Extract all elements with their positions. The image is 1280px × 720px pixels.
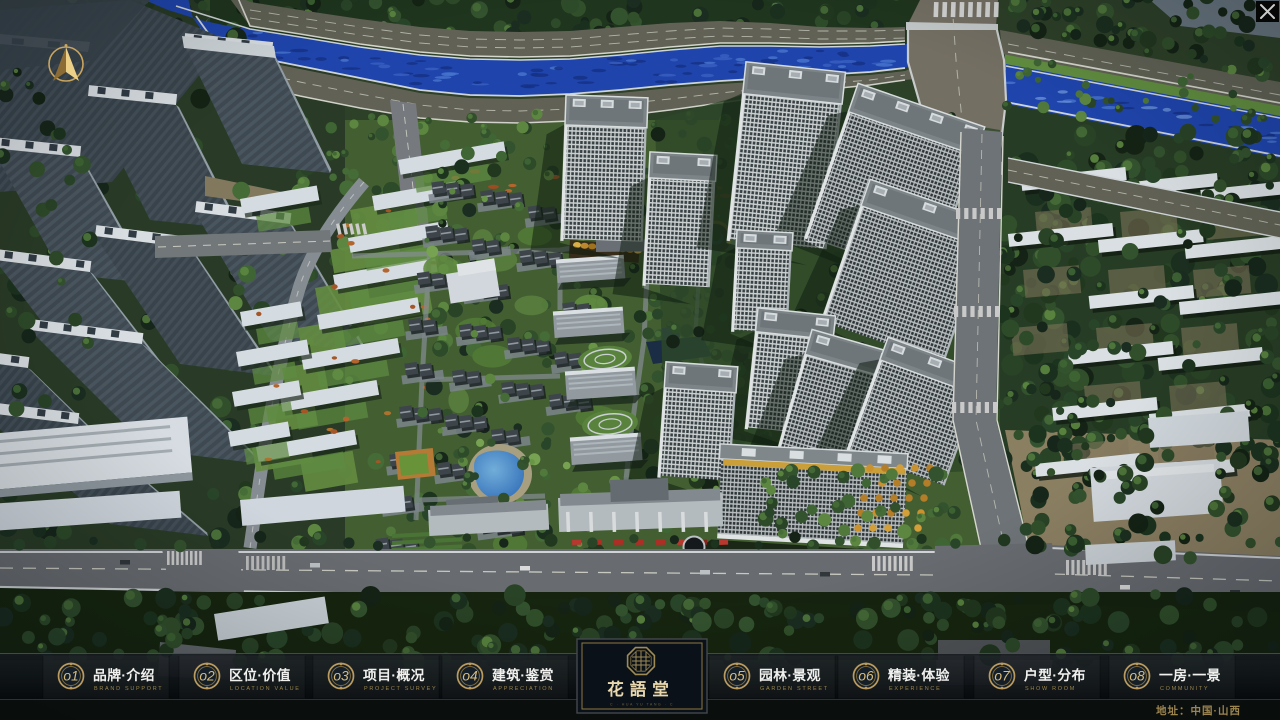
svg-text:o6: o6 (858, 669, 874, 684)
svg-text:户型·分布: 户型·分布 (1024, 667, 1086, 683)
svg-text:精装·体验: 精装·体验 (888, 667, 950, 683)
svg-text:一房·一景: 一房·一景 (1159, 667, 1221, 683)
svg-text:PROJECT SURVEY: PROJECT SURVEY (364, 686, 437, 692)
svg-text:o2: o2 (199, 669, 215, 684)
svg-text:园林·景观: 园林·景观 (759, 667, 821, 683)
svg-text:品牌·介绍: 品牌·介绍 (93, 667, 155, 683)
svg-text:o4: o4 (462, 669, 478, 684)
svg-text:COMMUNITY: COMMUNITY (1160, 686, 1209, 692)
svg-text:项目·概况: 项目·概况 (363, 667, 425, 683)
svg-text:C · HUA YU TANG · C: C · HUA YU TANG · C (610, 703, 674, 707)
svg-text:BRAND SUPPORT: BRAND SUPPORT (94, 686, 163, 692)
svg-text:LOCATION VALUE: LOCATION VALUE (230, 686, 301, 692)
svg-text:APPRECIATION: APPRECIATION (493, 686, 554, 692)
svg-text:GARDEN STREET: GARDEN STREET (760, 686, 829, 692)
svg-text:o3: o3 (333, 669, 349, 684)
svg-text:地址：中国·山西: 地址：中国·山西 (1156, 704, 1241, 717)
svg-text:o7: o7 (994, 669, 1011, 684)
svg-text:o1: o1 (63, 669, 78, 684)
svg-text:建筑·鉴赏: 建筑·鉴赏 (492, 667, 554, 683)
svg-text:花語堂: 花語堂 (607, 679, 675, 699)
svg-text:o8: o8 (1129, 669, 1145, 684)
svg-text:区位·价值: 区位·价值 (229, 667, 291, 683)
svg-text:o5: o5 (729, 669, 745, 684)
svg-text:EXPERIENCE: EXPERIENCE (889, 686, 941, 692)
svg-text:SHOW ROOM: SHOW ROOM (1025, 686, 1076, 692)
